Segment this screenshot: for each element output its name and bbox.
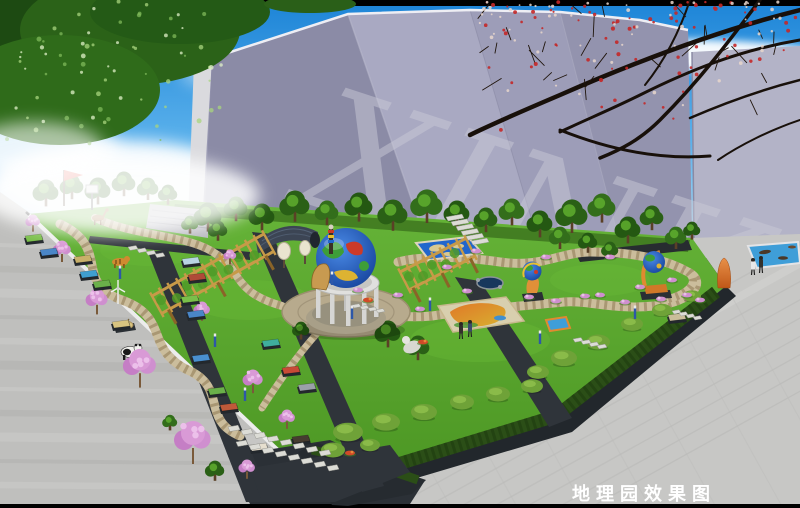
fish-sculpture <box>788 246 796 249</box>
fish-sculpture <box>778 256 788 260</box>
bush <box>621 317 643 332</box>
bush <box>486 387 510 403</box>
bush <box>372 413 400 431</box>
bush <box>521 379 543 394</box>
bush <box>411 404 437 421</box>
bush <box>450 395 474 411</box>
bush <box>551 350 577 367</box>
sign-pole <box>634 306 636 320</box>
sign-pole <box>429 298 431 312</box>
geography-garden-rendering: XINK <box>0 0 800 508</box>
sign-pole <box>214 334 216 348</box>
bush <box>360 439 380 452</box>
bush <box>527 365 549 380</box>
rock-pond <box>476 277 503 289</box>
bush <box>333 423 363 443</box>
sign-pole <box>244 388 246 402</box>
rendering-canvas: XINK <box>0 0 800 508</box>
sand-pit <box>546 317 570 331</box>
sculpture-pool <box>748 242 800 268</box>
sign-pole <box>119 266 121 280</box>
sign-pole <box>539 331 541 345</box>
caption-title: 地理园效果图 <box>572 483 716 505</box>
sign-pole <box>331 272 333 286</box>
sign-pole <box>351 306 353 320</box>
